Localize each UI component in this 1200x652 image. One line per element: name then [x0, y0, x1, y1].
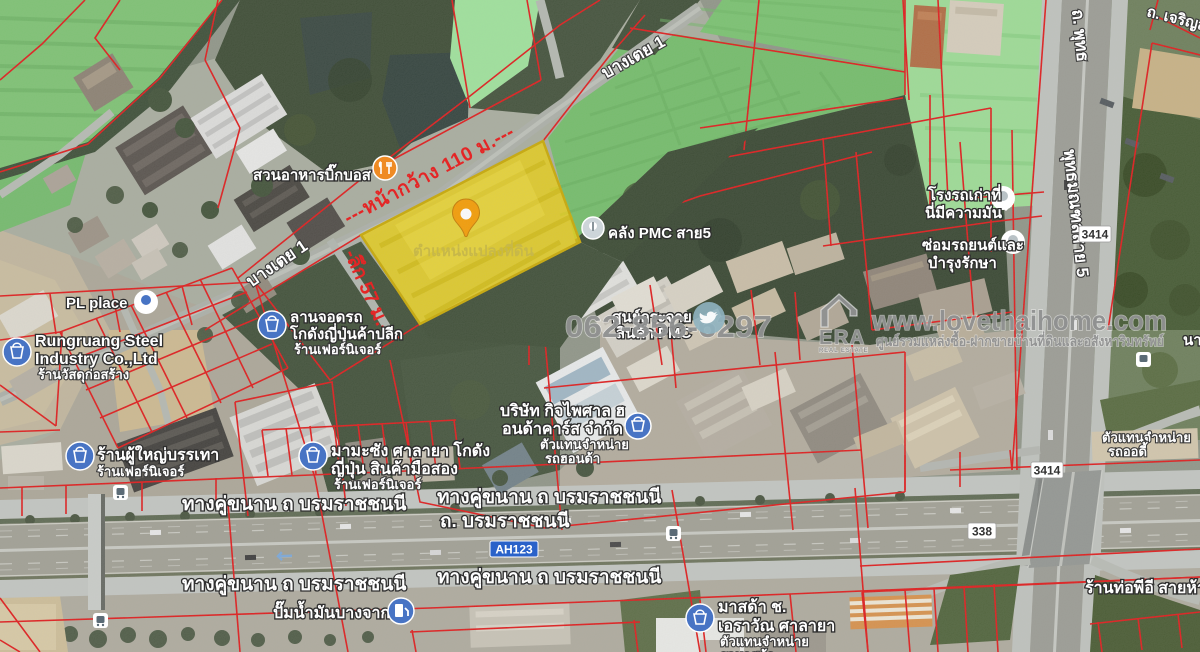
svg-text:Rungruang Steel: Rungruang Steel — [35, 333, 163, 350]
svg-text:ตัวแทนจำหน่าย: ตัวแทนจำหน่าย — [540, 437, 629, 452]
svg-text:นา: นา — [1183, 332, 1200, 349]
svg-text:รถฮอนด้า: รถฮอนด้า — [545, 451, 600, 466]
svg-text:ร้านเฟอร์นิเจอร์: ร้านเฟอร์นิเจอร์ — [334, 477, 421, 492]
svg-text:ทางคู่ขนาน ถ บรมราชชนนี: ทางคู่ขนาน ถ บรมราชชนนี — [437, 566, 661, 589]
svg-text:ร้านผู้ใหญ่บรรเทา: ร้านผู้ใหญ่บรรเทา — [97, 445, 219, 466]
svg-text:ถ. บรมราชชนนี: ถ. บรมราชชนนี — [440, 510, 570, 532]
svg-text:ร้านวัสดุก่อสร้าง: ร้านวัสดุก่อสร้าง — [38, 367, 129, 383]
svg-text:ลานจอดรถ: ลานจอดรถ — [290, 309, 363, 326]
svg-text:ตัวแทนจำหน่าย: ตัวแทนจำหน่าย — [720, 634, 809, 649]
svg-text:REAL ESTATE: REAL ESTATE — [819, 348, 868, 354]
svg-text:รถมาสด้า: รถมาสด้า — [720, 648, 774, 652]
svg-text:062-856-6297: 062-856-6297 — [565, 309, 772, 344]
svg-text:เอราวัณ ศาลายา: เอราวัณ ศาลายา — [718, 617, 835, 635]
svg-text:มาสด้า ช.: มาสด้า ช. — [718, 598, 786, 616]
svg-text:ร้านท่อพีอี สายห้า: ร้านท่อพีอี สายห้า — [1085, 578, 1200, 597]
svg-text:ญี่ปุ่น สินค้ามือสอง: ญี่ปุ่น สินค้ามือสอง — [331, 457, 458, 479]
svg-text:Industry Co.,Ltd: Industry Co.,Ltd — [35, 351, 158, 368]
svg-text:รถออดี้: รถออดี้ — [1108, 441, 1148, 459]
svg-text:สวนอาหารบิ๊กบอส: สวนอาหารบิ๊กบอส — [253, 163, 372, 184]
svg-text:ร้านเฟอร์นิเจอร์: ร้านเฟอร์นิเจอร์ — [97, 464, 184, 479]
svg-text:ทางคู่ขนาน ถ บรมราชชนนี: ทางคู่ขนาน ถ บรมราชชนนี — [182, 573, 406, 596]
svg-text:ทางคู่ขนาน ถ บรมราชชนนี: ทางคู่ขนาน ถ บรมราชชนนี — [182, 493, 406, 516]
svg-text:อนด้าคาร์ส จำกัด: อนด้าคาร์ส จำกัด — [502, 419, 623, 438]
svg-text:www.lovethaihome.com: www.lovethaihome.com — [871, 305, 1167, 336]
svg-text:ร้านเฟอร์นิเจอร์: ร้านเฟอร์นิเจอร์ — [294, 342, 381, 357]
svg-text:AH123: AH123 — [495, 543, 533, 557]
svg-text:โรงรถเก่าที่: โรงรถเก่าที่ — [927, 184, 1001, 204]
svg-text:ทางคู่ขนาน ถ บรมราชชนนี: ทางคู่ขนาน ถ บรมราชชนนี — [437, 486, 661, 509]
svg-text:ซ่อมรถยนต์และ: ซ่อมรถยนต์และ — [922, 236, 1024, 254]
svg-text:PL place: PL place — [66, 295, 127, 312]
svg-text:คลัง PMC สาย5: คลัง PMC สาย5 — [608, 225, 711, 242]
svg-text:นี่มีความมัน: นี่มีความมัน — [925, 202, 1003, 222]
svg-text:3414: 3414 — [1082, 228, 1109, 242]
svg-text:บำรุงรักษา: บำรุงรักษา — [928, 255, 997, 273]
svg-text:โกดังญี่ปุ่นค้าปลีก: โกดังญี่ปุ่นค้าปลีก — [289, 323, 403, 344]
svg-text:338: 338 — [972, 525, 992, 539]
svg-text:บริษัท กิจไพศาล ฮ: บริษัท กิจไพศาล ฮ — [500, 401, 625, 420]
svg-text:ERA: ERA — [819, 327, 866, 349]
svg-text:ศูนย์รวมแหล่งซื้อ-ฝากขายบ้านที: ศูนย์รวมแหล่งซื้อ-ฝากขายบ้านที่ดินและอสั… — [876, 330, 1164, 350]
svg-text:มามะซัง ศาลายา โกดัง: มามะซัง ศาลายา โกดัง — [331, 440, 490, 460]
svg-text:3414: 3414 — [1034, 464, 1061, 478]
svg-text:ตัวแทนจำหน่าย: ตัวแทนจำหน่าย — [1102, 430, 1191, 445]
